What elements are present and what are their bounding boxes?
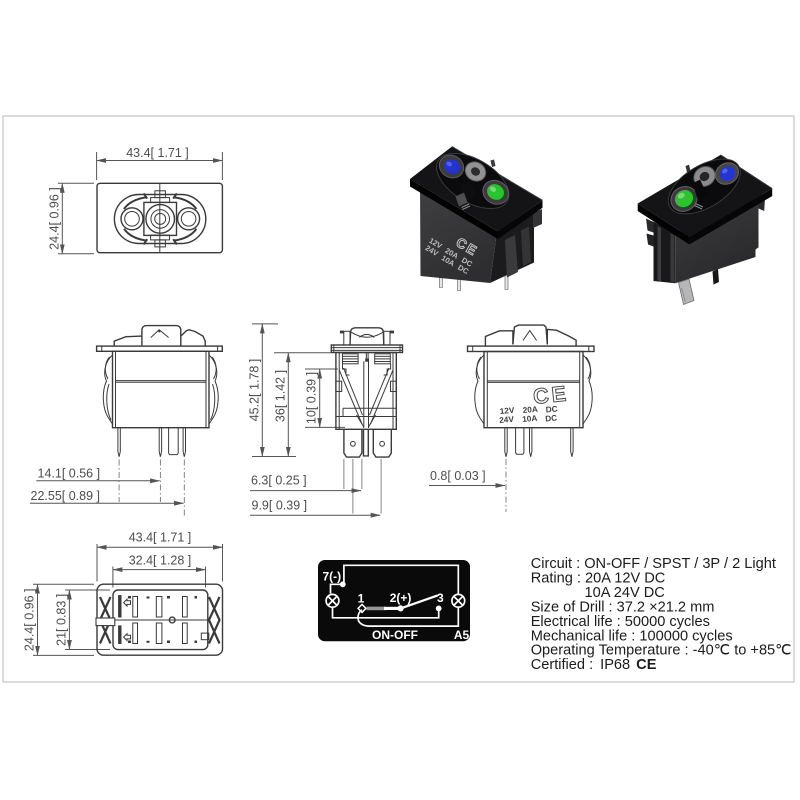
svg-text:43.4[ 1.71 ]: 43.4[ 1.71 ]: [126, 146, 189, 160]
svg-text:24.4[ 0.96 ]: 24.4[ 0.96 ]: [48, 187, 62, 250]
svg-text:10A: 10A: [522, 414, 538, 424]
svg-text:10[ 0.39 ]: 10[ 0.39 ]: [305, 372, 319, 424]
svg-text:6.3[ 0.25 ]: 6.3[ 0.25 ]: [251, 474, 307, 488]
svg-text:22.55[ 0.89 ]: 22.55[ 0.89 ]: [31, 489, 101, 503]
svg-text:24.4[ 0.96 ]: 24.4[ 0.96 ]: [23, 589, 37, 652]
svg-text:36[ 1.42 ]: 36[ 1.42 ]: [274, 370, 288, 422]
svg-text:43.4[ 1.71 ]: 43.4[ 1.71 ]: [129, 531, 192, 545]
svg-text:32.4[ 1.28 ]: 32.4[ 1.28 ]: [129, 553, 192, 567]
svg-text:2(+): 2(+): [390, 591, 412, 605]
svg-text:7(-): 7(-): [323, 570, 342, 584]
svg-text:A5: A5: [454, 628, 470, 642]
svg-text:9.9[ 0.39 ]: 9.9[ 0.39 ]: [252, 499, 308, 513]
svg-text:ON-OFF: ON-OFF: [372, 628, 418, 642]
svg-text:24V: 24V: [499, 415, 515, 425]
svg-text:3: 3: [437, 591, 444, 605]
svg-text:0.8[ 0.03 ]: 0.8[ 0.03 ]: [430, 469, 486, 483]
svg-text:DC: DC: [545, 413, 558, 423]
svg-text:1: 1: [358, 592, 365, 606]
svg-text:21[ 0.83 ]: 21[ 0.83 ]: [55, 594, 69, 646]
svg-text:45.2[ 1.78 ]: 45.2[ 1.78 ]: [248, 359, 262, 422]
svg-text:14.1[ 0.56 ]: 14.1[ 0.56 ]: [38, 467, 101, 481]
